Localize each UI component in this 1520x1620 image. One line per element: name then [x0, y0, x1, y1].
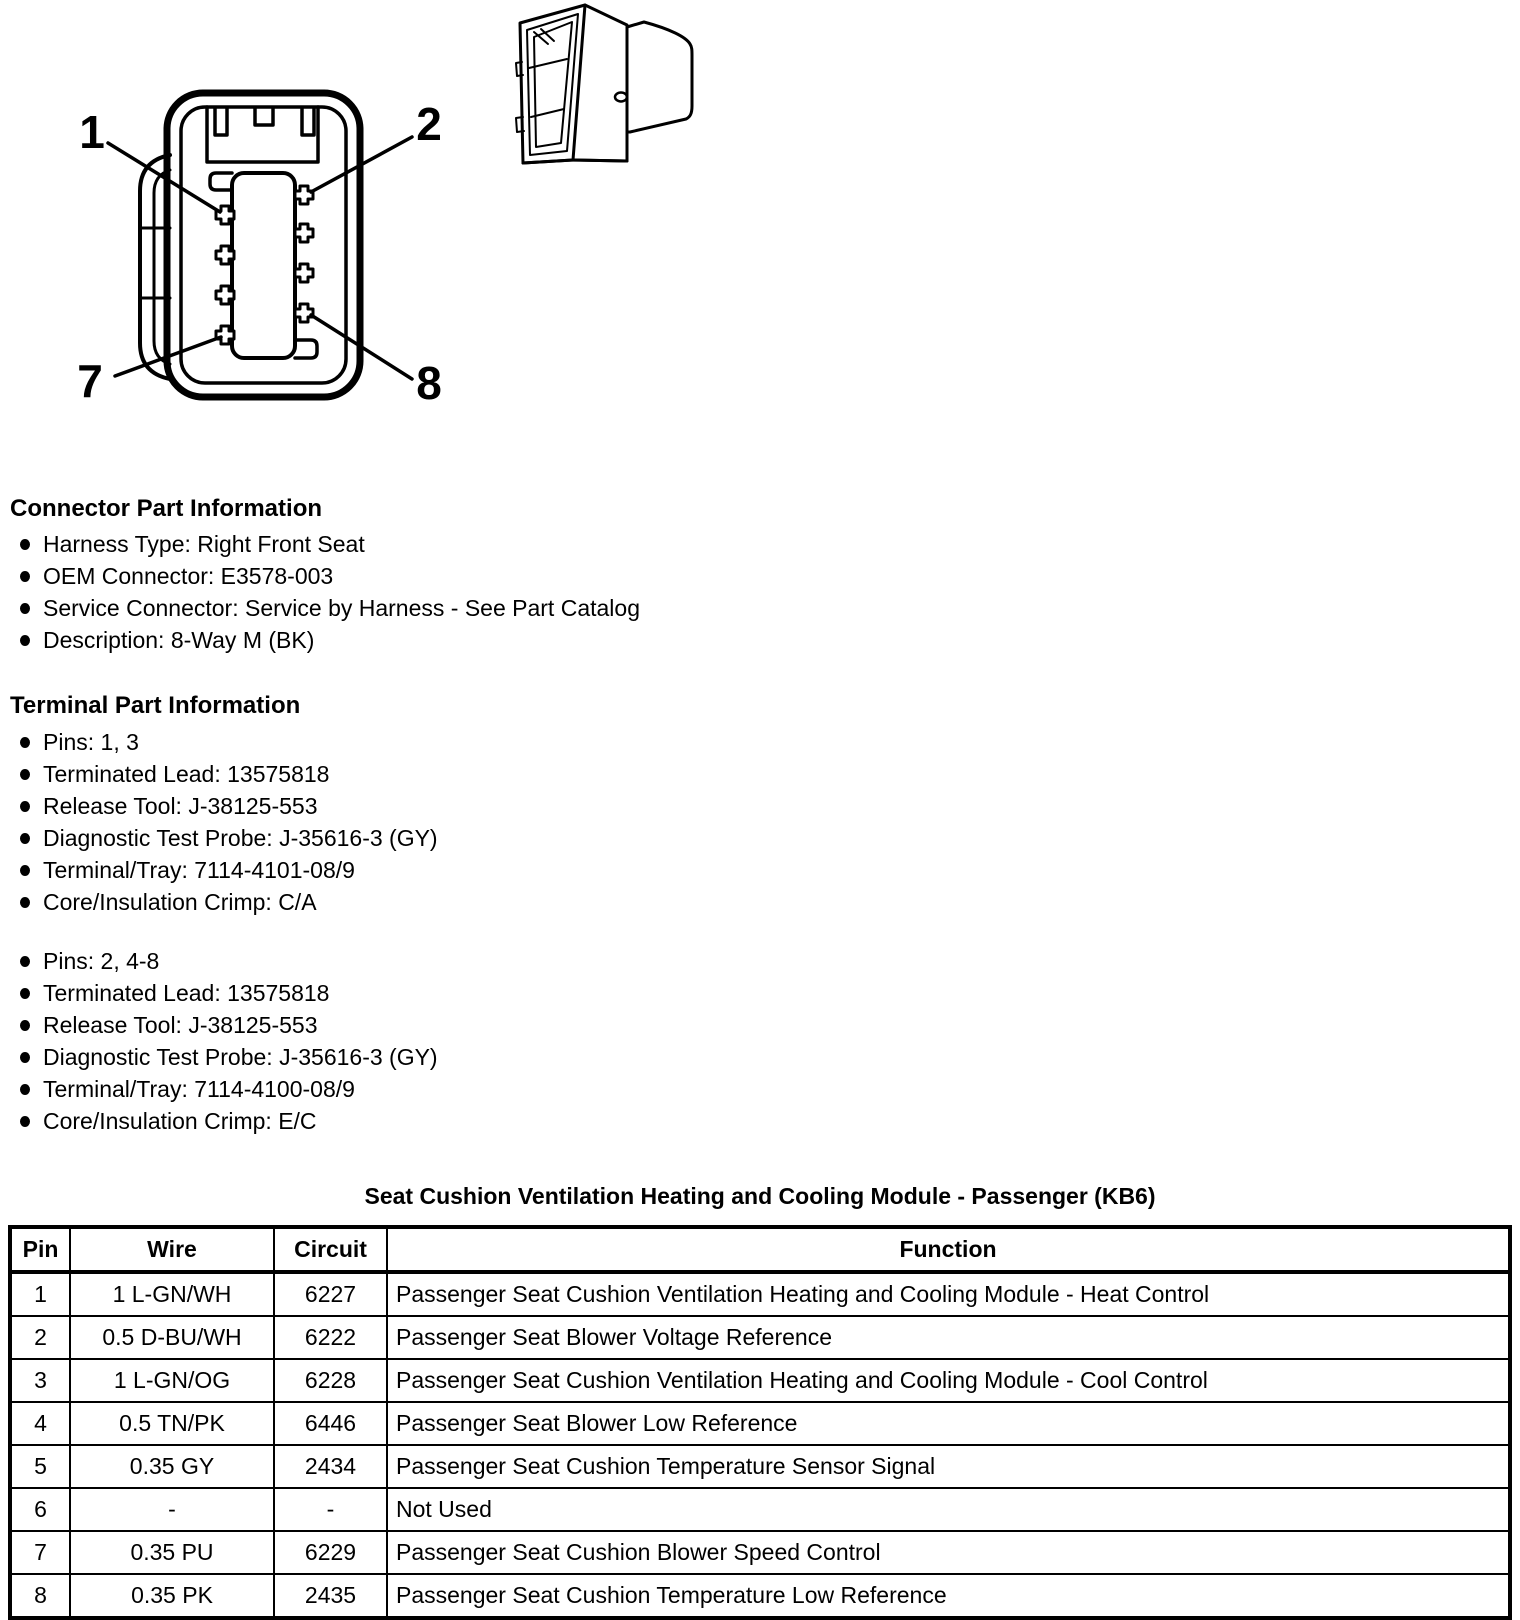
bullet-text: Terminated Lead: 13575818: [43, 761, 329, 787]
cell-function: Passenger Seat Cushion Blower Speed Cont…: [387, 1531, 1510, 1574]
pin-callout-label-7: 7: [77, 355, 103, 407]
bullet-item: Release Tool: J-38125-553: [10, 790, 438, 822]
table-row: 70.35 PU6229Passenger Seat Cushion Blowe…: [10, 1531, 1510, 1574]
pin-8-icon: [295, 304, 313, 322]
pin-6-icon: [295, 264, 313, 282]
bullet-item: Terminated Lead: 13575818: [10, 758, 438, 790]
connector-top-recess: [207, 107, 318, 162]
cell-function: Passenger Seat Cushion Temperature Senso…: [387, 1445, 1510, 1488]
cell-pin: 1: [10, 1272, 70, 1316]
cell-wire: -: [70, 1488, 274, 1531]
bullet-text: OEM Connector: E3578-003: [43, 563, 333, 589]
connector-part-info-list: Harness Type: Right Front SeatOEM Connec…: [10, 528, 640, 656]
cell-circuit: -: [274, 1488, 387, 1531]
bullet-item: Pins: 1, 3: [10, 726, 438, 758]
bullet-item: Terminal/Tray: 7114-4100-08/9: [10, 1073, 438, 1105]
cell-function: Passenger Seat Blower Voltage Reference: [387, 1316, 1510, 1359]
bullet-item: Service Connector: Service by Harness - …: [10, 592, 640, 624]
bullet-item: Description: 8-Way M (BK): [10, 624, 640, 656]
cell-wire: 0.35 PU: [70, 1531, 274, 1574]
iso-side-face: [573, 5, 627, 161]
cell-wire: 0.35 PK: [70, 1574, 274, 1618]
bullet-icon: [20, 1116, 30, 1127]
iso-bottom-edge: [523, 160, 627, 163]
iso-side-hole: [615, 93, 627, 102]
table-row: 11 L-GN/WH6227Passenger Seat Cushion Ven…: [10, 1272, 1510, 1316]
connector-3d-diagram: [490, 0, 820, 200]
table-row: 20.5 D-BU/WH6222Passenger Seat Blower Vo…: [10, 1316, 1510, 1359]
connector-outer-shell: [167, 93, 360, 397]
column-header-function: Function: [387, 1227, 1510, 1272]
cell-circuit: 2435: [274, 1574, 387, 1618]
pin-4-icon: [295, 224, 313, 242]
bullet-text: Core/Insulation Crimp: C/A: [43, 889, 317, 915]
bullet-text: Terminal/Tray: 7114-4100-08/9: [43, 1076, 355, 1102]
cell-function: Passenger Seat Cushion Ventilation Heati…: [387, 1359, 1510, 1402]
cell-circuit: 2434: [274, 1445, 387, 1488]
bullet-text: Core/Insulation Crimp: E/C: [43, 1108, 317, 1134]
tower-key-tab-top: [210, 173, 232, 190]
pinout-table-title: Seat Cushion Ventilation Heating and Coo…: [8, 1183, 1512, 1210]
bullet-icon: [20, 603, 30, 614]
bullet-item: Terminal/Tray: 7114-4101-08/9: [10, 854, 438, 886]
cell-circuit: 6228: [274, 1359, 387, 1402]
connector-terminal-tower: [232, 173, 295, 358]
bullet-item: Diagnostic Test Probe: J-35616-3 (GY): [10, 822, 438, 854]
bullet-icon: [20, 801, 30, 812]
bullet-item: Terminated Lead: 13575818: [10, 977, 438, 1009]
bullet-item: Release Tool: J-38125-553: [10, 1009, 438, 1041]
bullet-icon: [20, 1084, 30, 1095]
column-header-pin: Pin: [10, 1227, 70, 1272]
cell-wire: 0.35 GY: [70, 1445, 274, 1488]
bullet-item: OEM Connector: E3578-003: [10, 560, 640, 592]
cell-wire: 1 L-GN/OG: [70, 1359, 274, 1402]
cell-wire: 0.5 TN/PK: [70, 1402, 274, 1445]
pinout-table-header: PinWireCircuitFunction: [10, 1227, 1510, 1272]
bullet-icon: [20, 769, 30, 780]
cell-pin: 5: [10, 1445, 70, 1488]
cell-pin: 6: [10, 1488, 70, 1531]
tower-key-tab-bottom: [295, 340, 317, 358]
iso-rear-body: [627, 22, 692, 132]
bullet-icon: [20, 1020, 30, 1031]
bullet-icon: [20, 988, 30, 999]
pinout-table: PinWireCircuitFunction 11 L-GN/WH6227Pas…: [8, 1225, 1512, 1620]
cell-circuit: 6227: [274, 1272, 387, 1316]
bullet-text: Release Tool: J-38125-553: [43, 1012, 317, 1038]
pin-callout-label-8: 8: [416, 357, 442, 409]
bullet-text: Service Connector: Service by Harness - …: [43, 595, 640, 621]
bullet-icon: [20, 833, 30, 844]
bullet-icon: [20, 737, 30, 748]
bullet-text: Diagnostic Test Probe: J-35616-3 (GY): [43, 825, 438, 851]
bullet-text: Release Tool: J-38125-553: [43, 793, 317, 819]
bullet-icon: [20, 865, 30, 876]
table-row: 80.35 PK2435Passenger Seat Cushion Tempe…: [10, 1574, 1510, 1618]
cell-function: Passenger Seat Cushion Ventilation Heati…: [387, 1272, 1510, 1316]
table-row: 6--Not Used: [10, 1488, 1510, 1531]
cell-wire: 0.5 D-BU/WH: [70, 1316, 274, 1359]
connector-face-diagram: 1 2 7 8: [60, 85, 480, 420]
bullet-text: Pins: 1, 3: [43, 729, 139, 755]
column-header-circuit: Circuit: [274, 1227, 387, 1272]
cell-pin: 8: [10, 1574, 70, 1618]
cell-function: Passenger Seat Blower Low Reference: [387, 1402, 1510, 1445]
pin-2-icon: [295, 186, 313, 204]
bullet-text: Terminal/Tray: 7114-4101-08/9: [43, 857, 355, 883]
bullet-icon: [20, 897, 30, 908]
page: { "connector_diagram": { "pin_callouts":…: [0, 0, 1520, 1614]
bullet-icon: [20, 1052, 30, 1063]
cell-function: Passenger Seat Cushion Temperature Low R…: [387, 1574, 1510, 1618]
cell-pin: 7: [10, 1531, 70, 1574]
header-row: PinWireCircuitFunction: [10, 1227, 1510, 1272]
bullet-icon: [20, 571, 30, 582]
bullet-text: Diagnostic Test Probe: J-35616-3 (GY): [43, 1044, 438, 1070]
bullet-text: Description: 8-Way M (BK): [43, 627, 314, 653]
terminal-part-info-list-pins-2-4-8: Pins: 2, 4-8Terminated Lead: 13575818Rel…: [10, 945, 438, 1137]
bullet-item: Harness Type: Right Front Seat: [10, 528, 640, 560]
cell-pin: 4: [10, 1402, 70, 1445]
cell-circuit: 6229: [274, 1531, 387, 1574]
bullet-item: Diagnostic Test Probe: J-35616-3 (GY): [10, 1041, 438, 1073]
cell-pin: 2: [10, 1316, 70, 1359]
bullet-item: Core/Insulation Crimp: E/C: [10, 1105, 438, 1137]
bullet-item: Core/Insulation Crimp: C/A: [10, 886, 438, 918]
bullet-text: Terminated Lead: 13575818: [43, 980, 329, 1006]
pin-callout-label-1: 1: [79, 106, 105, 158]
pinout-table-body: 11 L-GN/WH6227Passenger Seat Cushion Ven…: [10, 1272, 1510, 1618]
cell-wire: 1 L-GN/WH: [70, 1272, 274, 1316]
bullet-icon: [20, 539, 30, 550]
pin-callout-label-2: 2: [416, 98, 442, 150]
bullet-icon: [20, 956, 30, 967]
terminal-part-info-list-pins-1-3: Pins: 1, 3Terminated Lead: 13575818Relea…: [10, 726, 438, 918]
cell-pin: 3: [10, 1359, 70, 1402]
bullet-icon: [20, 635, 30, 646]
terminal-part-info-heading: Terminal Part Information: [10, 693, 300, 719]
table-row: 31 L-GN/OG6228Passenger Seat Cushion Ven…: [10, 1359, 1510, 1402]
table-row: 50.35 GY2434Passenger Seat Cushion Tempe…: [10, 1445, 1510, 1488]
cell-circuit: 6222: [274, 1316, 387, 1359]
cell-circuit: 6446: [274, 1402, 387, 1445]
table-row: 40.5 TN/PK6446Passenger Seat Blower Low …: [10, 1402, 1510, 1445]
cell-function: Not Used: [387, 1488, 1510, 1531]
column-header-wire: Wire: [70, 1227, 274, 1272]
bullet-text: Pins: 2, 4-8: [43, 948, 159, 974]
connector-part-info-heading: Connector Part Information: [10, 496, 322, 522]
bullet-text: Harness Type: Right Front Seat: [43, 531, 365, 557]
bullet-item: Pins: 2, 4-8: [10, 945, 438, 977]
